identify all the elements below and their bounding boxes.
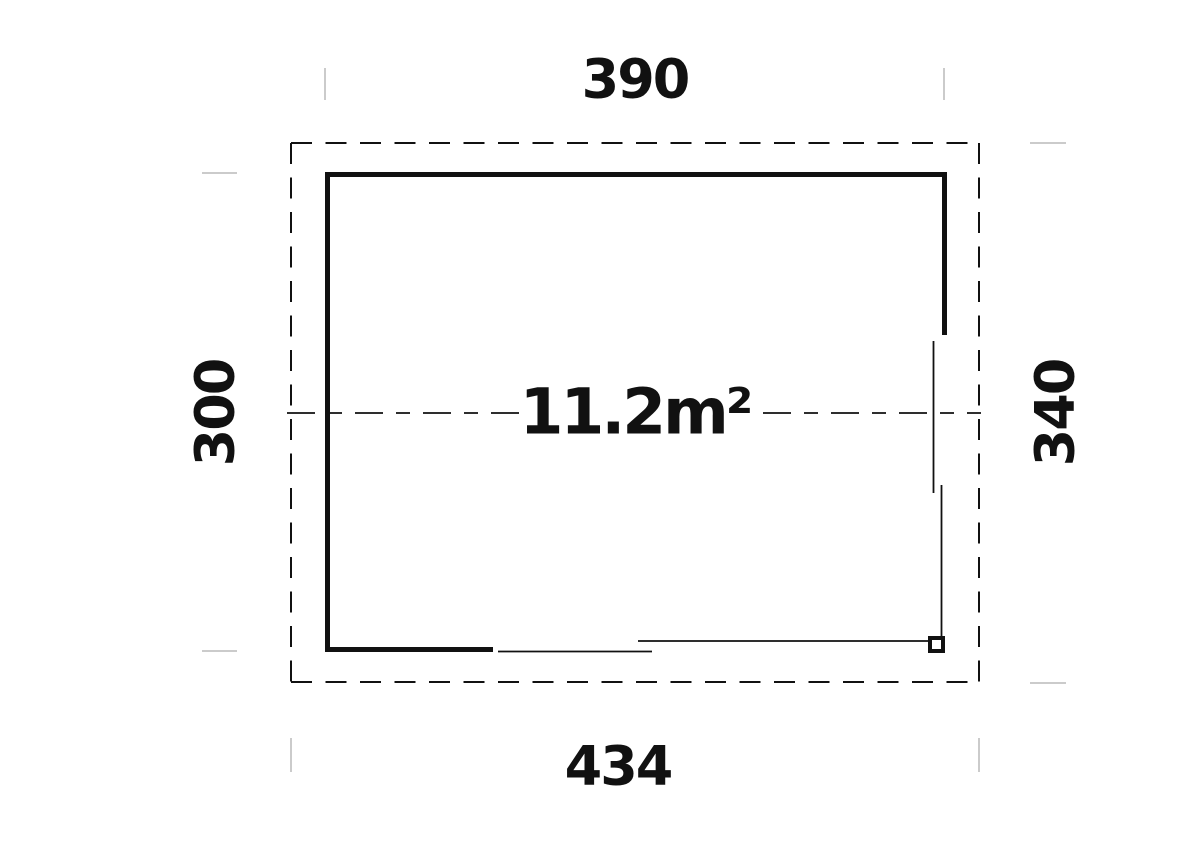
floor-plan-canvas: 390 434 300 340 11.2m²	[0, 0, 1200, 848]
dimension-label-left: 300	[183, 360, 246, 467]
dimension-label-right: 340	[1023, 360, 1086, 467]
labels: 390 434 300 340 11.2m²	[183, 47, 1086, 797]
dimension-label-bottom: 434	[565, 734, 672, 797]
corner-post	[930, 638, 943, 651]
dimension-label-top: 390	[582, 47, 689, 110]
floor-plan-drawing: 390 434 300 340 11.2m²	[0, 0, 1200, 848]
area-label: 11.2m²	[520, 376, 751, 449]
